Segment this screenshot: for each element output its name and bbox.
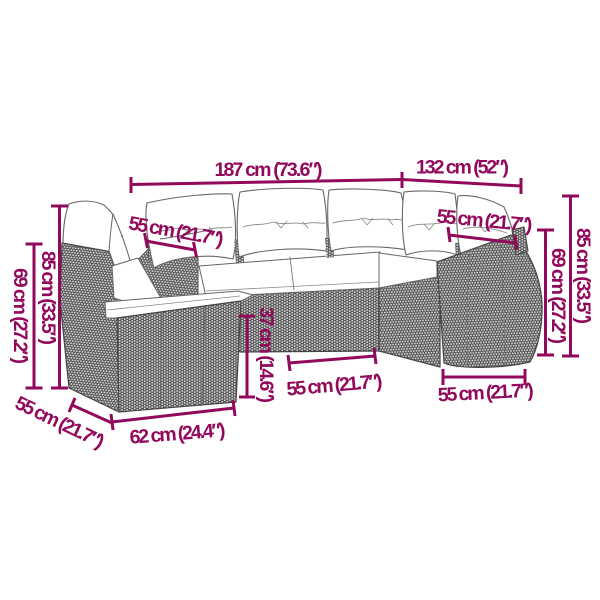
svg-text:55 cm (21.7″): 55 cm (21.7″) <box>437 380 534 407</box>
svg-text:85 cm (33.5″): 85 cm (33.5″) <box>37 251 59 345</box>
svg-text:62 cm (24.4″): 62 cm (24.4″) <box>129 419 226 448</box>
svg-text:132 cm (52″): 132 cm (52″) <box>416 157 509 179</box>
svg-text:55 cm (21.7″): 55 cm (21.7″) <box>12 392 108 453</box>
svg-text:85 cm (33.5″): 85 cm (33.5″) <box>572 228 594 324</box>
svg-text:69 cm (27.2″): 69 cm (27.2″) <box>9 268 31 364</box>
svg-text:37 cm (14.6″): 37 cm (14.6″) <box>255 307 277 403</box>
svg-text:187 cm (73.6″): 187 cm (73.6″) <box>215 159 323 181</box>
svg-text:55 cm (21.7″): 55 cm (21.7″) <box>286 370 384 400</box>
svg-text:69 cm (27.2″): 69 cm (27.2″) <box>547 248 569 344</box>
